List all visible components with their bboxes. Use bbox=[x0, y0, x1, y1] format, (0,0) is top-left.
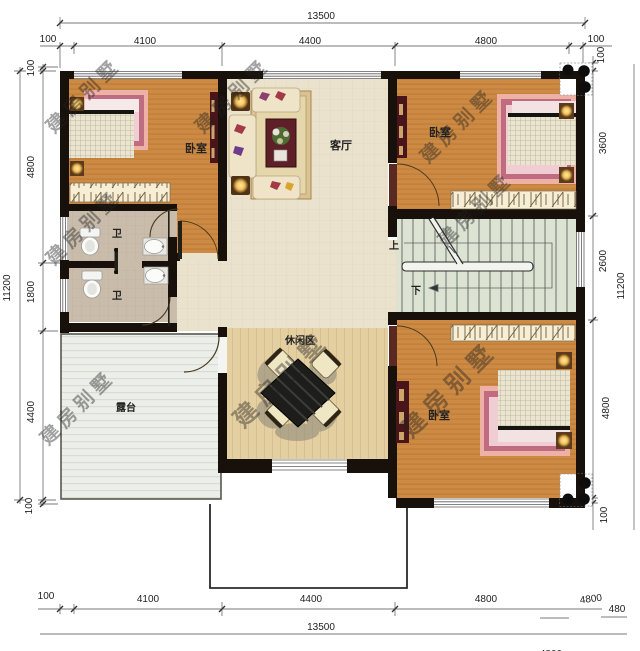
svg-text:480: 480 bbox=[609, 604, 626, 615]
svg-text:2600: 2600 bbox=[598, 249, 609, 272]
svg-text:客厅: 客厅 bbox=[329, 138, 352, 152]
svg-text:13500: 13500 bbox=[307, 622, 335, 633]
svg-text:卫: 卫 bbox=[112, 228, 122, 240]
svg-text:4800: 4800 bbox=[475, 36, 498, 47]
svg-text:11200: 11200 bbox=[2, 274, 13, 302]
svg-text:下: 下 bbox=[411, 285, 421, 297]
svg-text:13500: 13500 bbox=[307, 11, 335, 22]
svg-text:4400: 4400 bbox=[299, 36, 322, 47]
svg-text:4800: 4800 bbox=[26, 155, 37, 178]
svg-text:4100: 4100 bbox=[137, 594, 160, 605]
svg-text:4800: 4800 bbox=[475, 594, 498, 605]
svg-text:露台: 露台 bbox=[116, 401, 136, 414]
svg-text:1800: 1800 bbox=[26, 280, 37, 303]
svg-text:上: 上 bbox=[389, 239, 399, 252]
svg-text:100: 100 bbox=[599, 506, 610, 523]
svg-text:11200: 11200 bbox=[616, 272, 627, 300]
svg-text:4100: 4100 bbox=[134, 36, 157, 47]
svg-text:100: 100 bbox=[596, 46, 607, 63]
svg-text:4800: 4800 bbox=[601, 396, 612, 419]
svg-text:4400: 4400 bbox=[26, 400, 37, 423]
svg-text:100: 100 bbox=[588, 34, 605, 45]
svg-text:100: 100 bbox=[40, 34, 57, 45]
svg-text:卧室: 卧室 bbox=[185, 141, 207, 155]
svg-text:100: 100 bbox=[38, 591, 55, 602]
svg-text:100: 100 bbox=[26, 59, 37, 76]
svg-text:3600: 3600 bbox=[598, 131, 609, 154]
svg-text:卫: 卫 bbox=[112, 290, 122, 302]
svg-text:100: 100 bbox=[24, 497, 35, 514]
svg-text:4400: 4400 bbox=[300, 594, 323, 605]
